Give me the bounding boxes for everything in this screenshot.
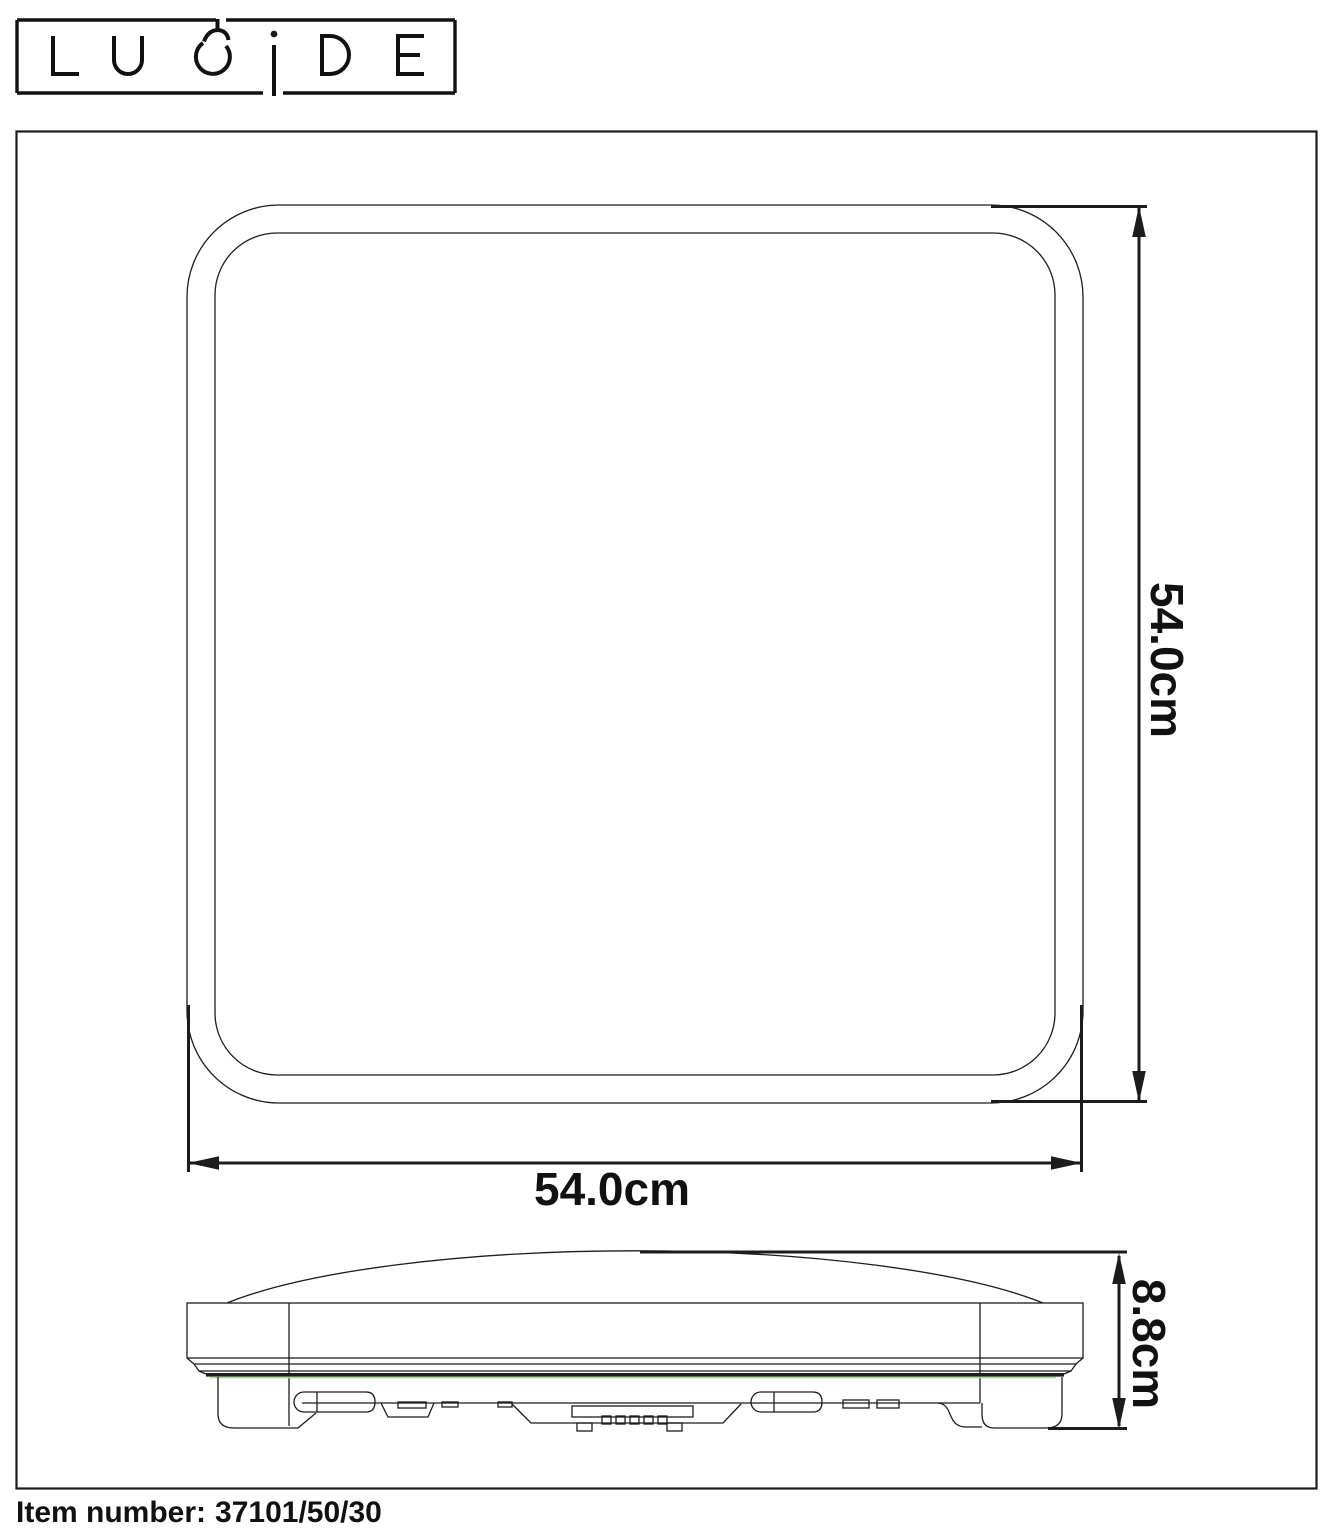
item-number-label: Item number: (16, 1496, 206, 1529)
width-dim-arrow-left (188, 1156, 219, 1170)
logo-letter-E (398, 36, 424, 74)
depth-dimension-label: 8.8cm (1123, 1279, 1175, 1409)
driver-foot-right (667, 1423, 682, 1431)
item-number-value: 37101/50/30 (215, 1496, 382, 1529)
item-number: Item number:37101/50/30 (16, 1496, 382, 1529)
logo-letter-D (322, 36, 349, 74)
mounting-base (218, 1377, 1062, 1431)
product-datasheet-page: LUCIDE (0, 0, 1332, 1533)
height-dim-arrow-top (1132, 206, 1146, 237)
logo-letter-C (196, 19, 230, 74)
driver-plate (572, 1406, 693, 1417)
mounting-bracket-right (751, 1392, 822, 1412)
base-foot-right (982, 1377, 1062, 1428)
side-view (187, 1251, 1083, 1431)
mounting-bracket-left (294, 1392, 375, 1412)
base-foot-left (218, 1377, 316, 1428)
base-step-right (938, 1403, 982, 1427)
width-dimension-label: 54.0cm (534, 1163, 690, 1215)
top-view (187, 205, 1083, 1103)
width-dimension: 54.0cm (188, 1005, 1082, 1215)
width-dim-arrow-right (1051, 1156, 1082, 1170)
logo-letters (53, 19, 424, 96)
drawing-border-frame (17, 132, 1317, 1489)
logo-frame (17, 20, 455, 93)
technical-drawing-canvas: 54.0cm 54.0cm (0, 0, 1332, 1533)
diffuser-dome-arc (227, 1251, 1043, 1303)
height-dimension-label: 54.0cm (1141, 582, 1193, 738)
driver-housing (512, 1404, 741, 1431)
base-plate-clips (398, 1400, 899, 1408)
logo-letter-U (114, 36, 142, 74)
logo-letter-L (53, 36, 79, 74)
logo-letter-i-dot (271, 31, 278, 38)
top-view-outer-edge (187, 205, 1083, 1103)
height-dimension: 54.0cm (991, 206, 1193, 1102)
lucide-logo (17, 19, 455, 96)
body-band (187, 1303, 1083, 1358)
height-dim-arrow-bottom (1132, 1071, 1146, 1102)
driver-foot-left (577, 1423, 592, 1431)
top-view-inner-edge (215, 233, 1055, 1075)
rim-steps (187, 1358, 1083, 1378)
